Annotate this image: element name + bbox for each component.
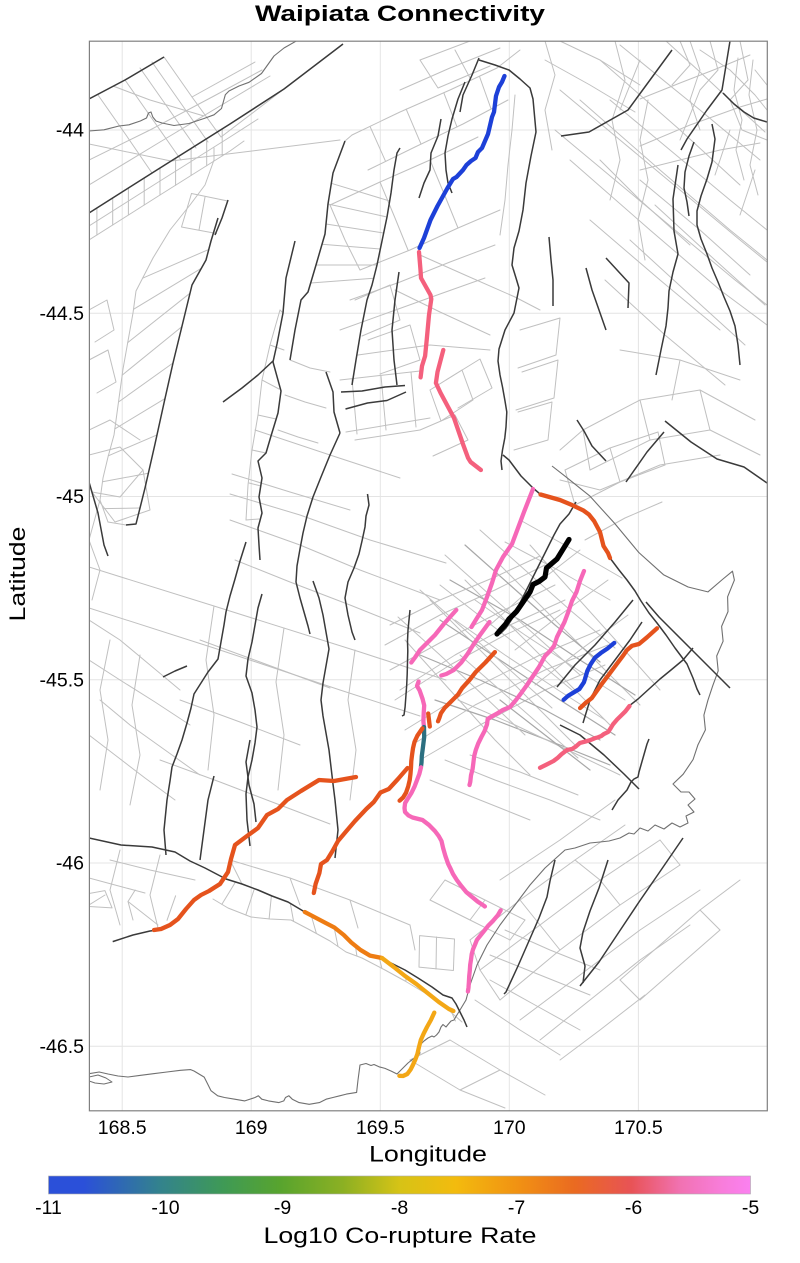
svg-text:-9: -9	[274, 1197, 291, 1219]
svg-text:169.5: 169.5	[356, 1117, 405, 1139]
svg-text:Waipiata Connectivity: Waipiata Connectivity	[255, 1, 546, 26]
svg-text:-11: -11	[35, 1197, 62, 1219]
svg-text:-6: -6	[625, 1197, 642, 1219]
svg-text:-10: -10	[151, 1197, 179, 1219]
svg-text:168.5: 168.5	[98, 1117, 147, 1139]
svg-text:-46: -46	[56, 853, 84, 875]
svg-text:Latitude: Latitude	[5, 527, 30, 622]
svg-text:-5: -5	[742, 1197, 759, 1219]
svg-text:Log10 Co-rupture Rate: Log10 Co-rupture Rate	[264, 1223, 537, 1248]
svg-text:-44: -44	[56, 120, 84, 142]
svg-text:-45: -45	[56, 486, 84, 508]
svg-text:-44.5: -44.5	[40, 303, 85, 325]
svg-text:-45.5: -45.5	[40, 669, 85, 691]
svg-text:-7: -7	[508, 1197, 525, 1219]
svg-text:Longitude: Longitude	[369, 1142, 487, 1167]
svg-text:-8: -8	[391, 1197, 408, 1219]
svg-text:170.5: 170.5	[614, 1117, 663, 1139]
svg-text:169: 169	[235, 1117, 268, 1139]
svg-text:170: 170	[493, 1117, 526, 1139]
svg-text:-46.5: -46.5	[40, 1036, 85, 1058]
